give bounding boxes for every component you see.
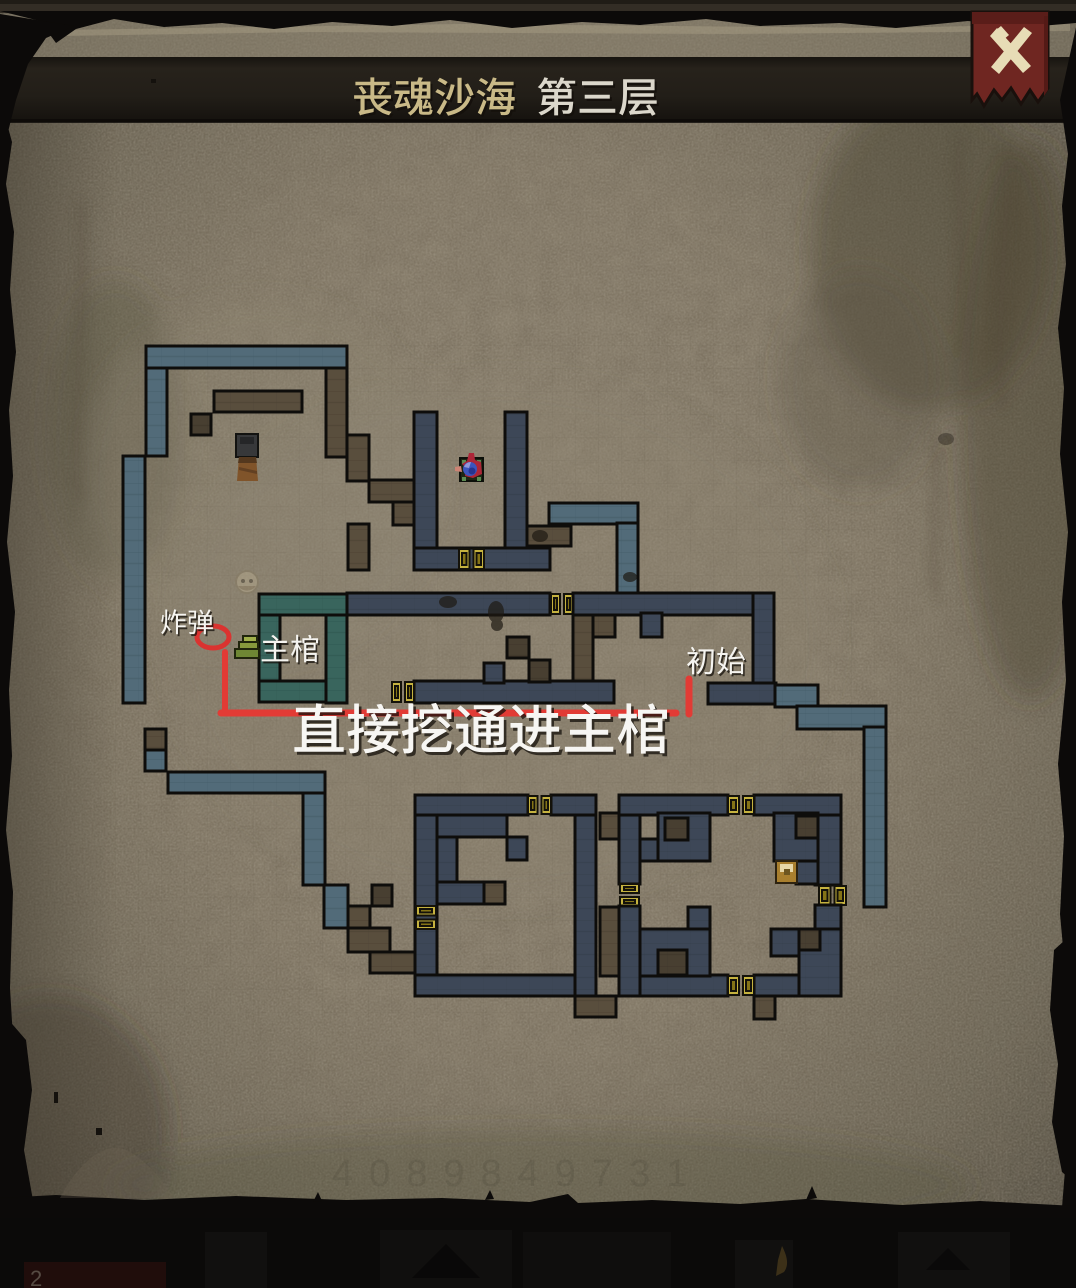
svg-text:2: 2	[30, 1266, 42, 1288]
svg-text:4089849731: 4089849731	[332, 1153, 703, 1195]
